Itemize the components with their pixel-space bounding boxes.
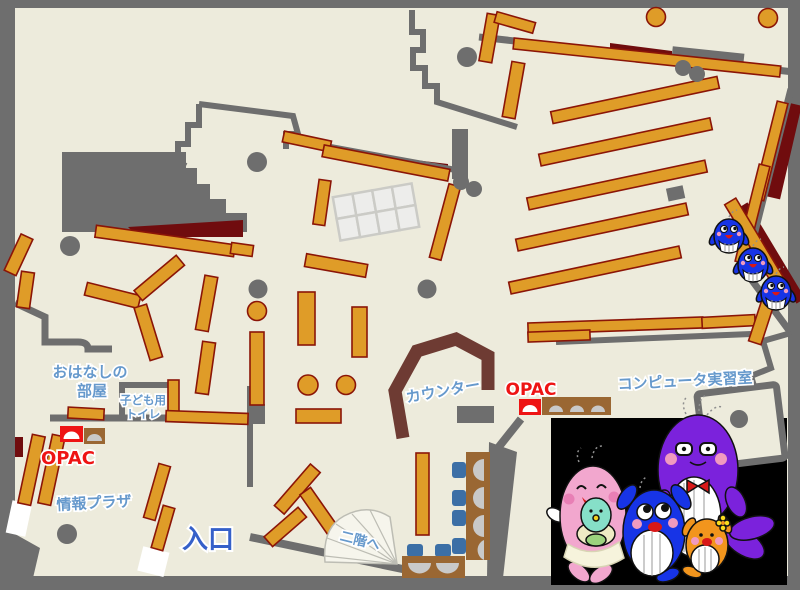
eye <box>599 509 602 512</box>
bookshelf <box>352 307 367 357</box>
blanket-trim <box>586 534 606 546</box>
bookshelf <box>68 407 105 420</box>
bookshelf <box>296 409 341 423</box>
label-entrance: 入口 <box>182 525 234 555</box>
eye <box>706 447 710 451</box>
wall-box <box>248 404 265 424</box>
label-kids-toilet-line1: 子ども用 <box>120 393 166 407</box>
door-hinge <box>675 60 691 76</box>
cheek <box>668 518 678 528</box>
bookshelf <box>166 411 248 425</box>
chair <box>452 462 466 478</box>
label-kids-toilet-line2: トイレ <box>126 407 161 421</box>
cheek <box>715 537 723 545</box>
opac-terminal-children <box>60 426 105 444</box>
study-desk-vertical <box>452 452 490 560</box>
eye <box>682 447 686 451</box>
pupil <box>661 504 669 512</box>
pillar <box>730 410 748 428</box>
pupil <box>643 505 651 513</box>
round-table <box>647 8 666 27</box>
round-table <box>298 375 318 395</box>
label-opac-children: OPAC <box>41 448 95 469</box>
chair <box>435 544 451 557</box>
pillar <box>247 152 267 172</box>
eye <box>589 509 592 512</box>
pillar <box>60 236 80 256</box>
bookshelf <box>528 330 590 342</box>
round-table <box>337 376 356 395</box>
flower-center <box>721 521 725 525</box>
cheek <box>715 453 727 465</box>
mouth <box>648 522 662 532</box>
flower-petal <box>720 515 726 521</box>
eye <box>710 533 714 537</box>
pillar <box>457 47 477 67</box>
chair <box>407 544 423 557</box>
wall-border-top <box>0 0 800 8</box>
pillar <box>418 280 437 299</box>
floor-map-canvas: おはなしの 部屋 子ども用 トイレ OPAC OPAC 情報プラザ 入口 カウン… <box>0 0 800 590</box>
library-floor-map: おはなしの 部屋 子ども用 トイレ OPAC OPAC 情報プラザ 入口 カウン… <box>0 0 800 590</box>
chair <box>452 490 466 506</box>
label-opac-counter: OPAC <box>506 380 557 400</box>
pacifier <box>593 515 599 521</box>
cheek <box>691 537 699 545</box>
counter-side-table <box>457 406 494 423</box>
dark-red-strip <box>15 437 23 457</box>
door-hinge <box>466 181 482 197</box>
bookshelf <box>250 332 264 405</box>
chair <box>452 538 466 554</box>
bookshelf <box>702 315 756 329</box>
eye <box>699 533 703 537</box>
door-panel <box>452 129 468 179</box>
label-storytelling-room-line2: 部屋 <box>77 382 107 400</box>
bookshelf <box>416 453 429 535</box>
bookshelf <box>298 292 315 345</box>
pillar <box>249 280 268 299</box>
round-table <box>759 9 778 28</box>
cheek <box>632 519 642 529</box>
cheek <box>665 453 677 465</box>
chair <box>452 510 466 526</box>
pillar <box>57 524 77 544</box>
flower-petal <box>720 525 726 531</box>
grid-table-cell <box>396 205 420 230</box>
label-storytelling-room-line1: おはなしの <box>52 363 127 381</box>
bookshelf <box>230 243 253 257</box>
round-table <box>248 302 267 321</box>
door-hinge <box>689 66 705 82</box>
mouth <box>702 538 712 546</box>
cheek <box>564 494 575 505</box>
